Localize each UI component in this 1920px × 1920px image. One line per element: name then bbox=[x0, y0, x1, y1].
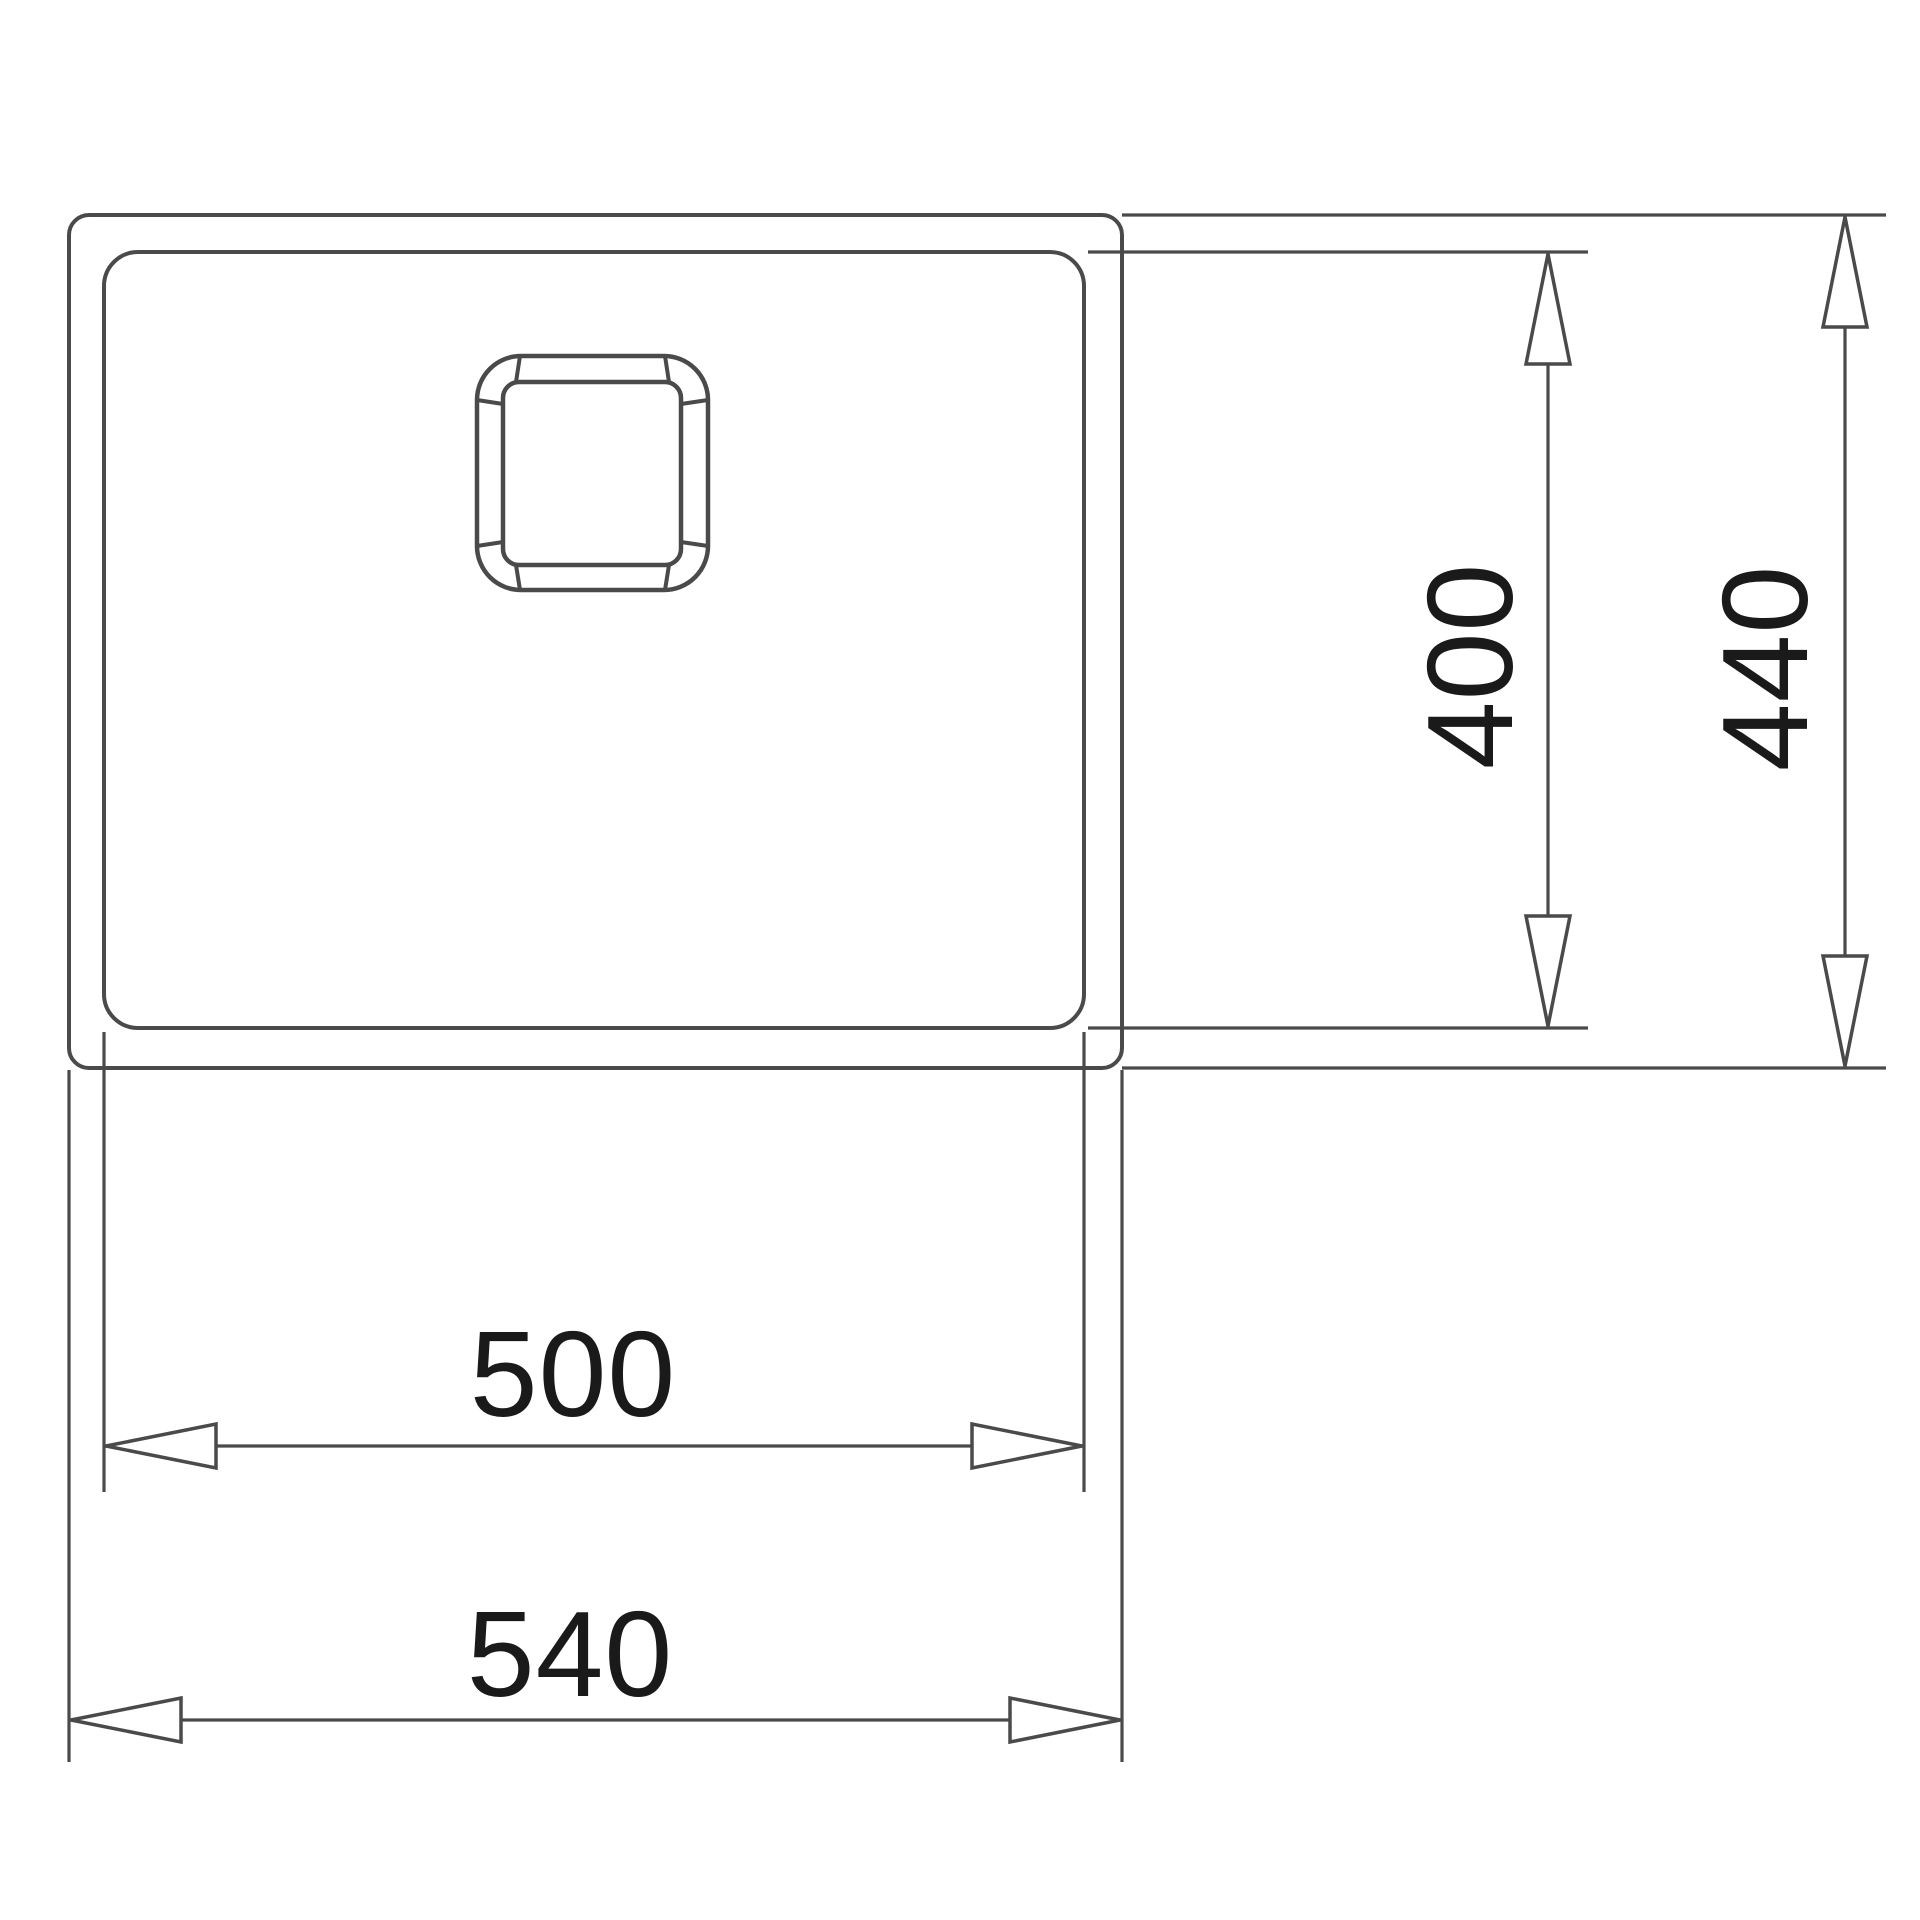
drain-corner-tick bbox=[681, 400, 708, 404]
drain-corner-tick bbox=[516, 356, 520, 382]
extension-lines bbox=[69, 215, 1886, 1762]
drain-corner-tick bbox=[665, 565, 669, 590]
sink-inner-outline bbox=[104, 252, 1084, 1028]
dimension-lines bbox=[69, 215, 1845, 1720]
dimension-label-outer-depth: 440 bbox=[1697, 565, 1833, 772]
drain-corner-tick bbox=[477, 542, 503, 546]
arrowhead-outer-width-right bbox=[1010, 1698, 1120, 1742]
arrowheads bbox=[71, 217, 1867, 1742]
drain-corner-tick bbox=[477, 400, 503, 404]
drain-corner-tick bbox=[665, 356, 669, 382]
arrowhead-inner-width-right bbox=[972, 1424, 1082, 1468]
dimension-labels: 400 440 500 540 bbox=[467, 563, 1833, 1722]
drawing-canvas: 400 440 500 540 bbox=[0, 0, 1920, 1920]
arrowhead-inner-depth-down bbox=[1526, 916, 1570, 1026]
sink-outline-group bbox=[69, 215, 1122, 1068]
drain-corner-tick bbox=[516, 565, 520, 590]
sink-dimension-drawing: 400 440 500 540 bbox=[0, 0, 1920, 1920]
arrowhead-outer-depth-down bbox=[1823, 956, 1867, 1066]
dimension-label-inner-depth: 400 bbox=[1402, 563, 1538, 770]
dimension-label-outer-width: 540 bbox=[467, 1586, 674, 1722]
drain-inner-outline bbox=[503, 382, 681, 565]
drain-group bbox=[477, 356, 708, 590]
arrowhead-outer-width-left bbox=[71, 1698, 181, 1742]
drain-corner-ticks bbox=[477, 356, 708, 590]
drain-outer-outline bbox=[477, 356, 708, 590]
drain-corner-tick bbox=[681, 542, 708, 546]
arrowhead-inner-width-left bbox=[106, 1424, 216, 1468]
dimension-label-inner-width: 500 bbox=[470, 1306, 677, 1442]
arrowhead-inner-depth-up bbox=[1526, 254, 1570, 364]
arrowhead-outer-depth-up bbox=[1823, 217, 1867, 327]
sink-outer-outline bbox=[69, 215, 1122, 1068]
